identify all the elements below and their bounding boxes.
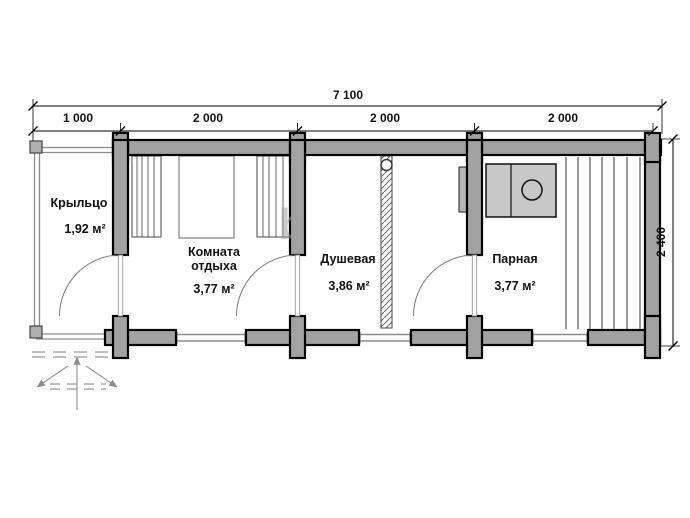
- shower-head: [381, 160, 392, 171]
- joint-bottom-4: [645, 316, 660, 358]
- bench-left: [132, 156, 161, 237]
- dim-segment-restroom: 2 000: [193, 111, 223, 125]
- restroom-furniture: [132, 156, 291, 238]
- porch-outline: [35, 148, 114, 340]
- table: [179, 156, 234, 238]
- room-area-shower: 3,86 м²: [328, 279, 369, 293]
- window-sauna: [532, 332, 588, 344]
- dim-depth: 2 400: [654, 227, 668, 257]
- watermark: b: [279, 200, 306, 250]
- joint-bottom-3: [467, 316, 482, 358]
- porch-post-top: [30, 141, 42, 153]
- porch-post-bottom: [30, 326, 42, 338]
- floor-plan-canvas: 7 100 1 000 2 000 2 000 2 000 2 400 Крыл…: [0, 0, 690, 518]
- window-restroom: [176, 332, 246, 344]
- joint-top-4: [645, 133, 660, 162]
- interior-wall-3: [467, 140, 482, 255]
- door-porch: [60, 255, 123, 316]
- room-area-restroom: 3,77 м²: [193, 282, 234, 296]
- doors: [60, 255, 477, 316]
- top-wall: [113, 140, 661, 155]
- room-area-porch: 1,92 м²: [64, 222, 105, 236]
- room-name-restroom: Комната отдыха: [167, 246, 261, 273]
- shower-partition: [381, 156, 392, 328]
- porch-steps: [32, 352, 120, 410]
- joint-bottom-1: [113, 316, 128, 358]
- room-name-sauna: Парная: [492, 252, 537, 266]
- room-name-shower: Душевая: [320, 252, 375, 266]
- dim-total-width: 7 100: [333, 88, 363, 102]
- dim-segment-porch: 1 000: [63, 111, 93, 125]
- dim-segment-sauna: 2 000: [548, 111, 578, 125]
- porch-posts: [30, 141, 42, 338]
- door-sauna: [414, 255, 477, 316]
- joint-bottom-2: [290, 316, 305, 358]
- sauna-benches: [566, 157, 640, 329]
- room-name-porch: Крыльцо: [51, 196, 108, 210]
- dim-segment-shower: 2 000: [370, 111, 400, 125]
- window-shower: [359, 332, 411, 344]
- room-area-sauna: 3,77 м²: [494, 279, 535, 293]
- interior-wall-1: [113, 140, 128, 255]
